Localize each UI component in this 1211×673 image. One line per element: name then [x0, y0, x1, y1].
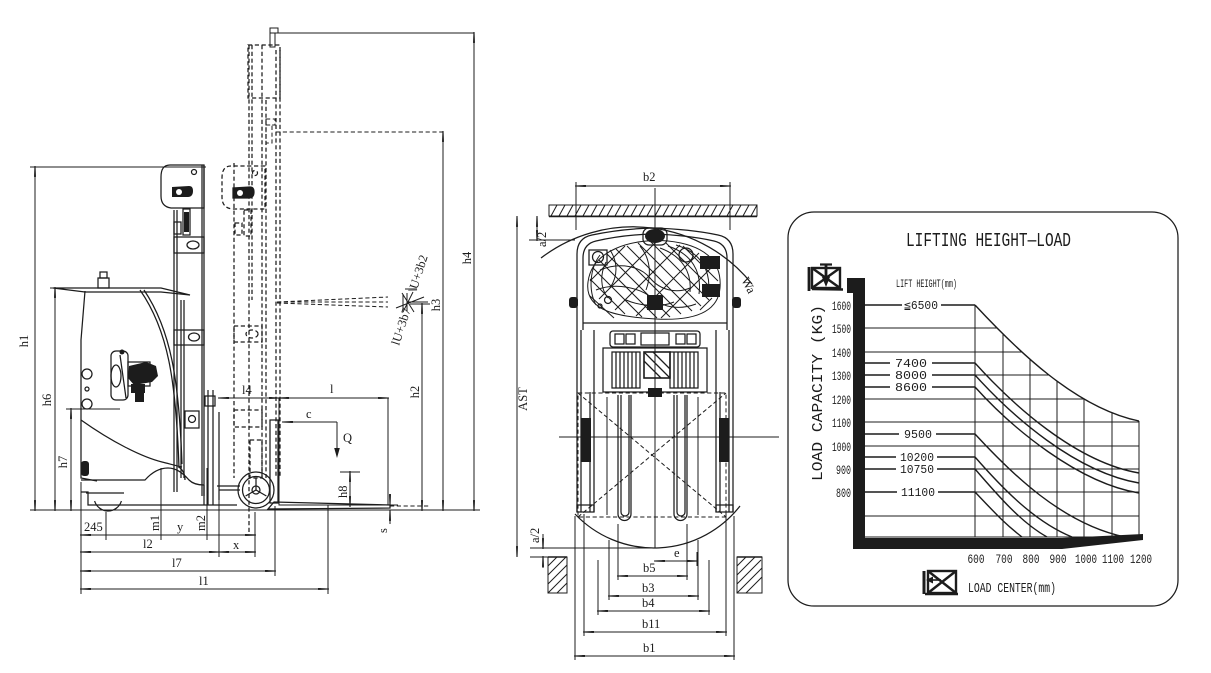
svg-text:800: 800	[1023, 552, 1040, 567]
svg-text:b4: b4	[642, 596, 655, 610]
svg-text:600: 600	[968, 552, 985, 567]
svg-text:b3: b3	[642, 581, 655, 595]
svg-text:245: 245	[84, 520, 103, 534]
svg-text:LIFTING HEIGHT—LOAD: LIFTING HEIGHT—LOAD	[906, 230, 1071, 252]
svg-text:l2: l2	[143, 537, 153, 551]
svg-text:a/2: a/2	[535, 232, 549, 247]
svg-text:l7: l7	[172, 556, 182, 570]
svg-text:h8: h8	[336, 486, 350, 499]
svg-text:1100: 1100	[832, 416, 851, 431]
svg-text:1100: 1100	[1102, 552, 1124, 567]
svg-text:1200: 1200	[832, 393, 851, 408]
svg-text:1400: 1400	[832, 346, 851, 361]
svg-text:900: 900	[836, 463, 851, 478]
svg-text:c: c	[306, 407, 312, 421]
svg-text:b2: b2	[643, 170, 656, 184]
svg-text:11100: 11100	[901, 487, 935, 500]
svg-text:h7: h7	[56, 456, 70, 469]
svg-text:900: 900	[1050, 552, 1067, 567]
svg-text:1500: 1500	[832, 322, 851, 337]
svg-text:l: l	[330, 382, 334, 396]
svg-text:LIFT HEIGHT(mm): LIFT HEIGHT(mm)	[896, 279, 957, 291]
svg-text:LOAD CAPACITY (KG): LOAD CAPACITY (KG)	[810, 305, 827, 481]
svg-text:h3: h3	[429, 299, 443, 312]
svg-text:m2: m2	[194, 515, 208, 531]
svg-text:10750: 10750	[900, 464, 934, 477]
svg-text:x: x	[233, 538, 240, 552]
svg-text:8600: 8600	[895, 382, 927, 395]
svg-text:h1: h1	[17, 335, 31, 348]
svg-text:1300: 1300	[832, 369, 851, 384]
svg-text:l1: l1	[199, 574, 209, 588]
svg-text:9500: 9500	[904, 429, 932, 442]
svg-text:700: 700	[996, 552, 1013, 567]
svg-text:LOAD CENTER(mm): LOAD CENTER(mm)	[968, 581, 1056, 597]
svg-text:AST: AST	[516, 387, 530, 411]
svg-text:m1: m1	[148, 515, 162, 531]
svg-text:b11: b11	[642, 617, 660, 631]
svg-text:b5: b5	[643, 561, 656, 575]
svg-text:s: s	[376, 528, 390, 533]
svg-text:Q: Q	[343, 431, 352, 445]
svg-text:b1: b1	[643, 641, 656, 655]
svg-text:y: y	[177, 520, 184, 534]
svg-text:h6: h6	[40, 394, 54, 407]
svg-text:≦6500: ≦6500	[904, 300, 938, 313]
svg-text:1200: 1200	[1130, 552, 1152, 567]
svg-text:e: e	[674, 546, 680, 560]
svg-text:1000: 1000	[1075, 552, 1097, 567]
svg-text:800: 800	[836, 486, 851, 501]
svg-text:1000: 1000	[832, 440, 851, 455]
svg-text:h2: h2	[408, 386, 422, 399]
svg-text:1600: 1600	[832, 299, 851, 314]
svg-text:h4: h4	[460, 251, 474, 264]
svg-text:a/2: a/2	[528, 528, 542, 543]
svg-text:l4: l4	[242, 383, 252, 397]
